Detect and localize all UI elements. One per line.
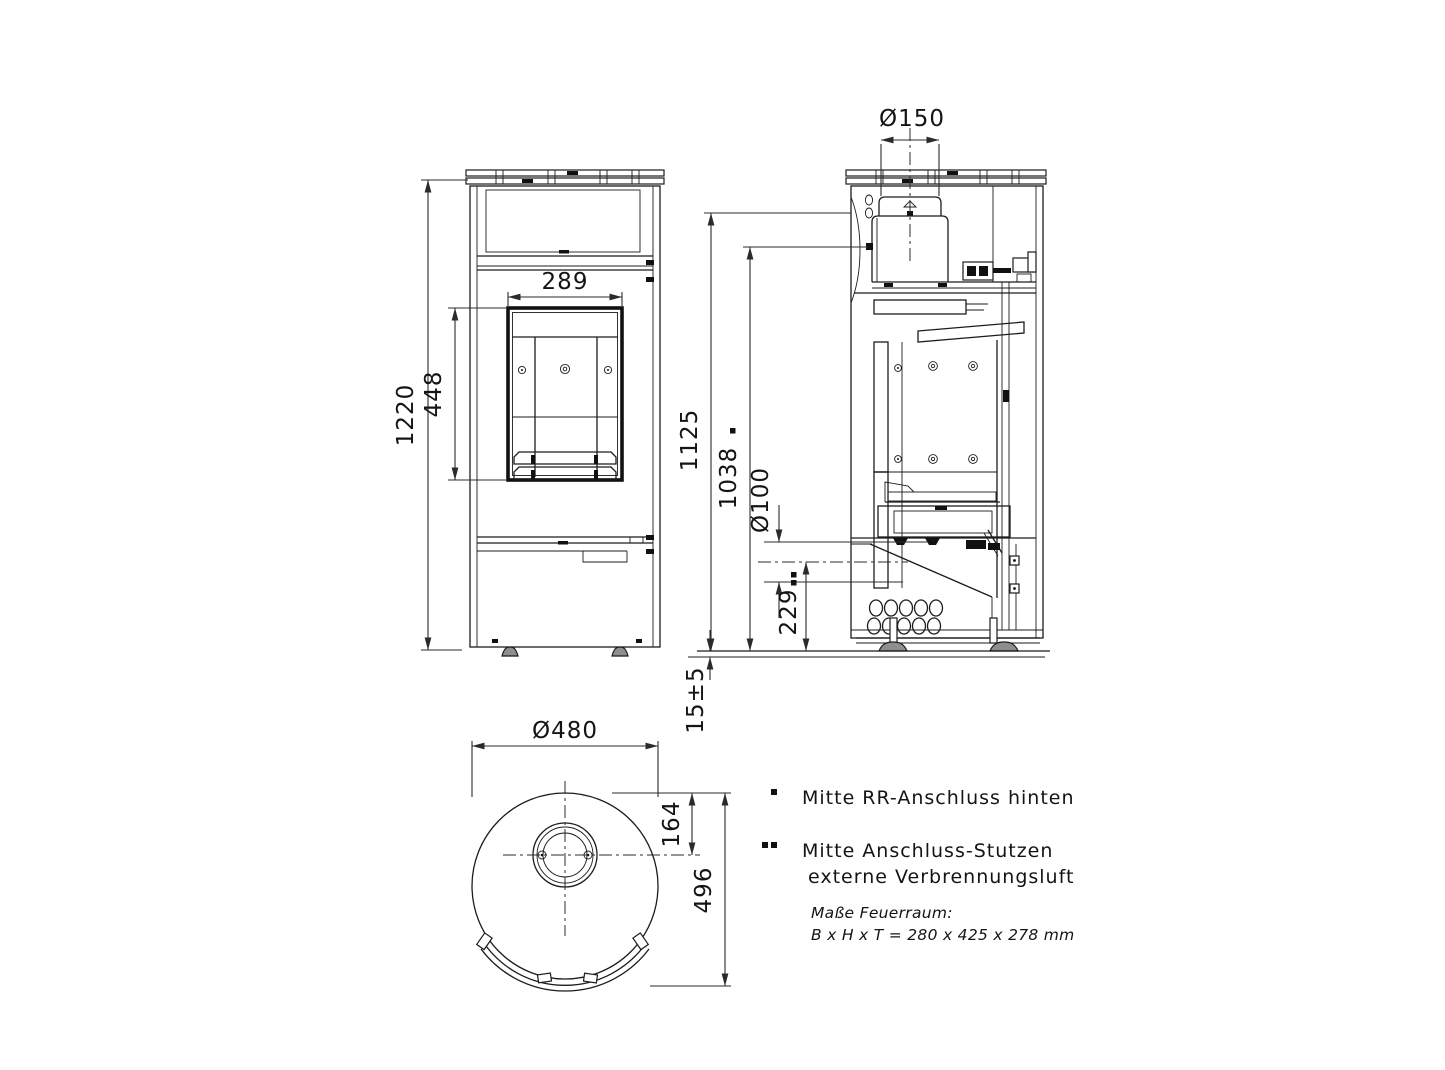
footnote-marker-double-icon	[791, 580, 797, 586]
front-firebox-window	[508, 308, 622, 480]
side-flue-collar	[865, 195, 941, 218]
dim-label-d480: Ø480	[532, 718, 598, 744]
front-view: 1220 448 289	[393, 170, 664, 656]
legend-item-rr-anschluss: Mitte RR-Anschluss hinten	[802, 787, 1075, 809]
side-feet	[879, 618, 1018, 651]
legend-item-anschluss-stutzen-line2: externe Verbrennungsluft	[808, 866, 1074, 888]
side-grate-ashbox	[878, 482, 1010, 537]
dim-label-496: 496	[691, 867, 717, 914]
firebox-note-title: Maße Feuerraum:	[811, 904, 953, 922]
footnote-marker-single-icon	[771, 789, 777, 795]
drawing-svg: 1220 448 289	[0, 0, 1445, 1070]
front-dim-window-width: 289	[508, 269, 622, 306]
convection-air-holes	[868, 600, 943, 634]
side-dim-air-inlet: Ø100	[748, 467, 928, 618]
legend: Mitte RR-Anschluss hinten Mitte Anschlus…	[762, 787, 1075, 944]
footnote-marker-single-icon	[730, 428, 736, 434]
front-top-plate	[466, 170, 664, 184]
footnote-marker-double-icon	[771, 842, 777, 848]
door-handle	[1003, 390, 1009, 402]
footnote-marker-double-icon	[791, 572, 797, 578]
top-view: Ø480 164 496	[472, 718, 731, 991]
side-lower-cabinet	[851, 538, 1043, 643]
footnote-marker-double-icon	[762, 842, 768, 848]
dim-label-1220: 1220	[393, 384, 419, 447]
side-dim-air-height: 229	[776, 562, 806, 651]
dim-label-229: 229	[776, 589, 802, 636]
side-top-plate	[846, 170, 1046, 184]
dim-label-289: 289	[542, 269, 589, 295]
front-dim-window-height: 448	[421, 308, 506, 480]
front-body	[470, 186, 660, 647]
dim-label-15-5: 15±5	[683, 666, 709, 733]
dim-label-d150: Ø150	[879, 106, 945, 132]
side-firebox	[874, 342, 997, 588]
top-dim-flue-offset: 164	[612, 793, 731, 855]
dim-label-1038: 1038	[716, 447, 742, 510]
top-handle-arc	[477, 933, 649, 991]
legend-item-anschluss-stutzen-line1: Mitte Anschluss-Stutzen	[802, 840, 1053, 862]
front-log-retainer-bars	[514, 452, 616, 479]
side-damper-mechanism	[963, 252, 1036, 282]
dim-label-164: 164	[659, 801, 685, 848]
firebox-note-dimensions: B x H x T = 280 x 425 x 278 mm	[811, 926, 1075, 944]
dim-label-d100: Ø100	[748, 467, 774, 533]
side-section-view: Ø150 1125 1038 Ø100 229	[677, 106, 1050, 734]
side-body	[851, 186, 1043, 638]
technical-drawing-stove: 1220 448 289	[0, 0, 1445, 1070]
side-dim-top-height: 1125	[677, 213, 851, 651]
front-lower-band	[477, 535, 654, 562]
side-dim-floor-clearance: 15±5	[683, 630, 710, 734]
dim-label-448: 448	[421, 371, 447, 418]
side-baffle-plates	[874, 300, 1024, 342]
dim-label-1125: 1125	[677, 409, 703, 472]
